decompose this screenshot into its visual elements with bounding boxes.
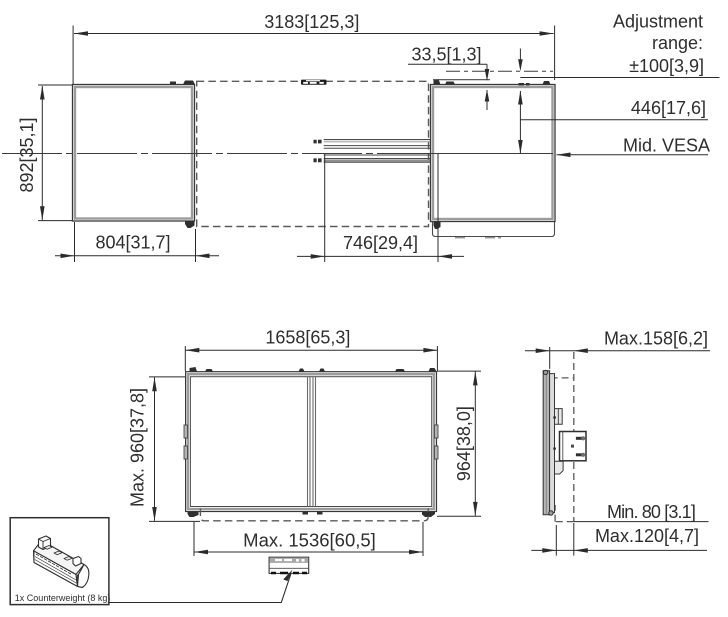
- svg-text:range:: range:: [652, 33, 703, 53]
- svg-text:746[29,4]: 746[29,4]: [343, 233, 418, 253]
- svg-text:Max.120[4,7]: Max.120[4,7]: [595, 526, 699, 546]
- svg-text:Max. 960[37,8]: Max. 960[37,8]: [128, 388, 148, 507]
- svg-text:Max. 1536[60,5]: Max. 1536[60,5]: [243, 530, 376, 551]
- svg-text:3183[125,3]: 3183[125,3]: [264, 12, 359, 32]
- svg-text:±100[3,9]: ±100[3,9]: [629, 56, 704, 76]
- svg-text:33,5[1,3]: 33,5[1,3]: [411, 45, 481, 65]
- svg-text:892[35,1]: 892[35,1]: [17, 117, 37, 192]
- svg-text:Mid. VESA: Mid. VESA: [623, 135, 710, 155]
- svg-text:Adjustment: Adjustment: [613, 11, 703, 31]
- svg-text:804[31,7]: 804[31,7]: [95, 232, 170, 252]
- svg-text:Min. 80 [3.1]: Min. 80 [3.1]: [607, 502, 695, 522]
- svg-text:Max.158[6,2]: Max.158[6,2]: [604, 329, 708, 349]
- svg-text:446[17,6]: 446[17,6]: [631, 98, 706, 118]
- svg-text:964[38,0]: 964[38,0]: [454, 406, 474, 481]
- svg-text:1658[65,3]: 1658[65,3]: [265, 327, 350, 347]
- svg-text:1x Counterweight (8 kg): 1x Counterweight (8 kg): [15, 593, 111, 603]
